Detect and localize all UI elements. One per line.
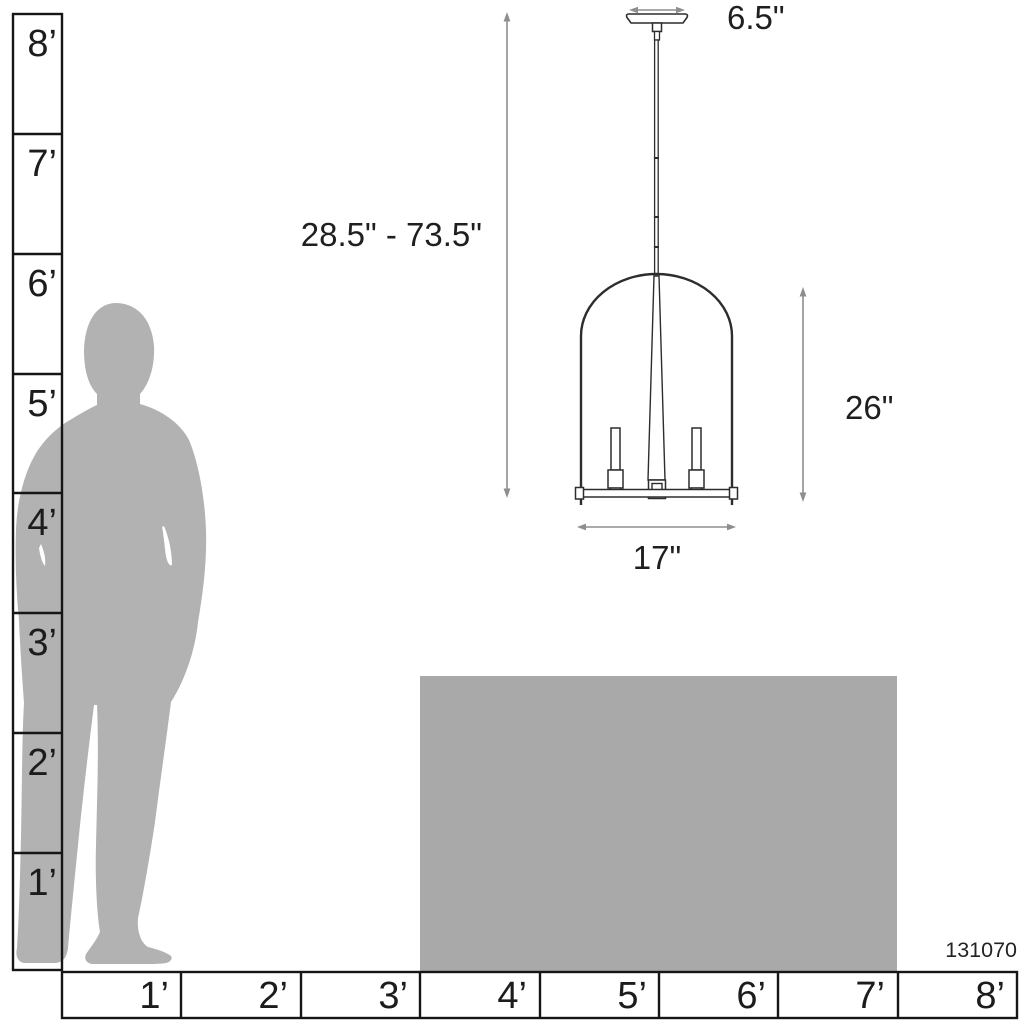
table-block xyxy=(420,676,897,972)
canopy-neck xyxy=(655,32,660,41)
vertical-ruler-label-5ft: 5’ xyxy=(13,385,57,425)
candle-socket-right xyxy=(689,470,704,488)
horizontal-ruler-label-4ft: 4’ xyxy=(420,977,527,1017)
diagram-artwork xyxy=(0,0,1024,1024)
fixture-width-arrow-icon xyxy=(577,524,736,531)
horizontal-ruler-label-1ft: 1’ xyxy=(62,977,169,1017)
vertical-ruler-label-7ft: 7’ xyxy=(13,145,57,185)
pendant-fixture xyxy=(576,14,738,505)
candle-left xyxy=(611,428,620,470)
horizontal-ruler-label-8ft: 8’ xyxy=(898,977,1005,1017)
horizontal-ruler-label-5ft: 5’ xyxy=(540,977,647,1017)
hanging-height-arrow-icon xyxy=(504,12,511,498)
fixture-height-arrow-icon xyxy=(800,287,807,502)
vertical-ruler-label-8ft: 8’ xyxy=(13,25,57,65)
vertical-ruler-label-1ft: 1’ xyxy=(13,864,57,904)
vertical-ruler-label-4ft: 4’ xyxy=(13,504,57,544)
vertical-ruler-label-3ft: 3’ xyxy=(13,624,57,664)
bottom-bar xyxy=(583,490,730,498)
scale-diagram: 8’ 7’ 6’ 5’ 4’ 3’ 2’ 1’ 1’ 2’ 3’ 4’ 5’ 6… xyxy=(0,0,1024,1024)
candle-socket-left xyxy=(608,470,623,488)
fixture-height-label: 26" xyxy=(845,391,893,426)
bar-cap-left xyxy=(576,488,584,500)
product-code: 131070 xyxy=(896,939,1017,962)
candle-right xyxy=(692,428,701,470)
hanging-height-label: 28.5" - 73.5" xyxy=(232,218,482,253)
canopy-knuckle xyxy=(653,23,662,32)
center-column xyxy=(648,276,665,480)
horizontal-ruler-label-3ft: 3’ xyxy=(301,977,408,1017)
ceiling-canopy xyxy=(627,14,688,23)
horizontal-ruler-label-2ft: 2’ xyxy=(181,977,288,1017)
vertical-ruler-label-2ft: 2’ xyxy=(13,744,57,784)
canopy-width-arrow-icon xyxy=(629,7,685,13)
bar-cap-right xyxy=(730,488,738,500)
fixture-width-label: 17" xyxy=(607,541,707,576)
canopy-width-label: 6.5" xyxy=(727,1,785,36)
horizontal-ruler-label-6ft: 6’ xyxy=(659,977,766,1017)
horizontal-ruler-label-7ft: 7’ xyxy=(778,977,885,1017)
vertical-ruler-label-6ft: 6’ xyxy=(13,265,57,305)
